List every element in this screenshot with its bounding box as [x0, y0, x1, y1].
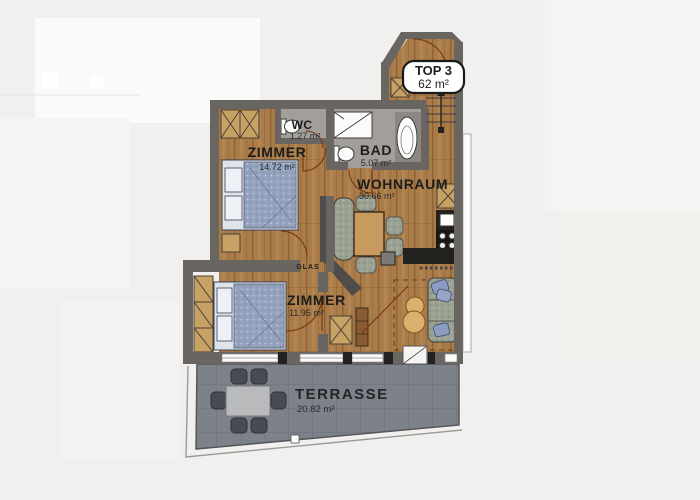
terrace-door-panel	[403, 346, 427, 364]
room-area-zimmer2: 11.95 m²	[289, 308, 324, 318]
room-area-terrasse: 20.82 m²	[297, 404, 335, 415]
room-name-wohnraum: WOHNRAUM	[357, 176, 448, 192]
lounge-chair-icon	[403, 297, 425, 333]
room-name-zimmer1: ZIMMER	[248, 144, 307, 160]
unit-name: TOP 3	[415, 63, 452, 78]
floor-plan-canvas: TERRASSE 20.82 m²	[0, 0, 700, 500]
terrace-drain-marker	[291, 435, 299, 443]
room-area-zimmer1: 14.72 m²	[259, 162, 295, 172]
toilet-icon	[334, 146, 354, 162]
shower-icon	[334, 112, 372, 138]
terrace: TERRASSE 20.82 m²	[186, 364, 462, 457]
wardrobe-icon	[221, 110, 259, 138]
unit-area: 62 m²	[418, 77, 449, 91]
room-area-wohnraum: 30.66 m²	[359, 191, 395, 201]
room-name-wc: WC	[292, 118, 313, 132]
bed-icon	[214, 282, 286, 350]
room-name-bad: BAD	[360, 142, 392, 158]
room-area-bad: 5.07 m²	[361, 158, 392, 168]
sink-icon	[440, 214, 454, 226]
room-name-terrasse: TERRASSE	[295, 386, 389, 403]
nightstand-icon	[222, 234, 240, 252]
room-name-zimmer2: ZIMMER	[287, 292, 346, 308]
closet-icon	[194, 276, 213, 352]
side-window-band	[463, 134, 471, 352]
glas-label: GLAS	[296, 264, 319, 271]
room-area-wc: 1.27 m²	[290, 131, 321, 141]
unit-label: TOP 3 62 m²	[403, 61, 464, 93]
floor-plan-page: TERRASSE 20.82 m²	[0, 0, 700, 500]
bathtub-icon	[395, 112, 421, 164]
